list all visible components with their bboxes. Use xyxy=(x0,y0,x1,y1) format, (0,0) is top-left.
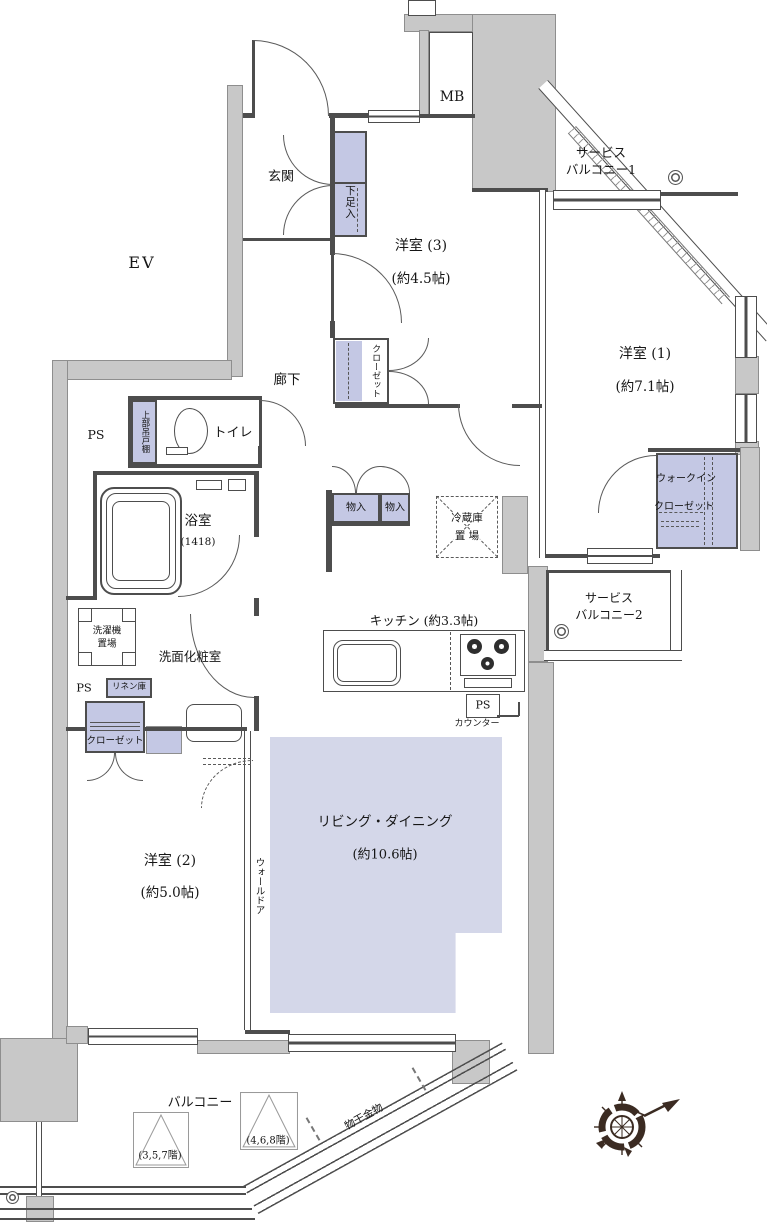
wall-sb2-left xyxy=(546,570,549,652)
wall-ev-right xyxy=(227,85,243,377)
wall-wic-top xyxy=(648,448,740,452)
storage-door-3 xyxy=(380,466,410,493)
storage1-label: 物入 xyxy=(346,502,366,514)
ps-upper-label: PS xyxy=(88,428,105,442)
counter-pointer-v xyxy=(518,702,520,716)
bath-counter xyxy=(196,480,222,490)
roof-protrusion xyxy=(408,0,436,16)
wall-b2-top-right xyxy=(143,727,247,731)
drain-icon-balcony1 xyxy=(668,170,683,185)
bedroom2-door-swing-dashed xyxy=(201,760,253,808)
wic-dash-h3 xyxy=(661,526,699,527)
wall-bath-left xyxy=(93,471,97,600)
wic-label-2: クローゼット xyxy=(654,501,714,513)
wall-entry-right xyxy=(329,113,371,118)
sink-icon xyxy=(333,640,401,686)
wall-sb2-bottom xyxy=(544,650,682,661)
shoe-door-swing-2 xyxy=(283,185,333,235)
wall-bottom-mid xyxy=(197,1040,290,1054)
hallway-label: 廊下 xyxy=(274,373,301,389)
shoe-cabinet-label: 下足入 xyxy=(344,185,356,220)
bedroom1-door-swing xyxy=(598,455,656,513)
bedroom2-closet-dash xyxy=(90,722,140,731)
kitchen-divider-dash xyxy=(450,632,452,690)
storage-door-2 xyxy=(356,466,380,493)
bath-size: (1418) xyxy=(181,536,216,548)
wall-bottom-left-edge xyxy=(66,1026,88,1044)
ev-label: EV xyxy=(128,254,155,272)
wall-window-sill-1 xyxy=(735,356,759,394)
drain-icon-balcony2 xyxy=(554,624,569,639)
entry-window xyxy=(368,110,420,123)
bath-control xyxy=(228,479,246,491)
powder-room-label: 洗面化粧室 xyxy=(159,650,222,664)
wall-b3-bottom xyxy=(335,404,460,408)
shoe-cabinet-divider xyxy=(334,182,366,184)
ps-mid-label: PS xyxy=(76,681,92,694)
fridge-label-2: 置 場 xyxy=(454,530,480,542)
wall-sb2-top xyxy=(546,570,676,573)
front-door-swing xyxy=(253,40,329,116)
stove-burner-icon xyxy=(467,639,482,654)
wall-toilet-right-b xyxy=(258,446,262,468)
wall-powder-right-lower xyxy=(254,696,259,731)
wall-ev-bottom xyxy=(52,360,232,380)
bedroom2-size: (約5.0帖) xyxy=(140,886,199,902)
wall-powder-right-upper xyxy=(254,598,259,614)
toilet-label: トイレ xyxy=(213,427,252,442)
wall-b1-bottom-1 xyxy=(545,554,591,558)
wall-kitchen-sb2 xyxy=(528,566,548,662)
wall-b3-b1 xyxy=(539,190,546,558)
bedroom3-door-swing xyxy=(332,253,402,323)
genkan-step xyxy=(243,238,335,241)
fridge-label-1: 冷蔵庫 xyxy=(450,512,484,524)
bedroom2-name: 洋室 (2) xyxy=(144,853,196,869)
bedroom3-closet-label: クローゼット xyxy=(370,344,380,398)
mb-label: MB xyxy=(440,89,465,105)
wall-bath-top xyxy=(93,471,258,475)
wall-ld-bottom-left xyxy=(245,1030,290,1034)
washer-label-1: 洗濯機 xyxy=(93,627,122,638)
washer-label-2: 置場 xyxy=(97,640,116,651)
service-balcony2-label-1: サービス xyxy=(585,592,633,606)
floor-plan: MB 玄関 下足入 サービス バルコニー1 洋室 (3) (約4.5帖) クロー… xyxy=(0,0,767,1224)
living-name: リビング・ダイニング xyxy=(318,815,453,831)
bedroom1-sb2-window xyxy=(587,548,653,564)
bedroom3-name: 洋室 (3) xyxy=(395,238,447,254)
vanity-icon xyxy=(186,704,242,742)
counter-pointer-h xyxy=(497,715,519,717)
service-balcony1-label-1: サービス xyxy=(576,146,626,160)
wic-dash-h2 xyxy=(661,521,699,522)
stove-burner-icon xyxy=(481,657,494,670)
bedroom2-closet-door-1 xyxy=(87,753,115,781)
stove-icon xyxy=(460,634,516,676)
stove-grill xyxy=(464,678,512,688)
bedroom3-size: (約4.5帖) xyxy=(391,272,450,288)
bathtub-icon xyxy=(100,487,182,595)
shoe-cabinet-dash xyxy=(357,188,359,232)
wall-top-right xyxy=(472,14,556,192)
living-bottom-window xyxy=(288,1034,456,1052)
bedroom3-door-leaf xyxy=(331,253,334,323)
wall-ld-right xyxy=(528,662,554,1054)
balcony-label: バルコニー xyxy=(168,1097,233,1112)
storage-door-1 xyxy=(332,466,356,493)
bedroom1-right-window-2 xyxy=(735,394,757,443)
living-dining-floor xyxy=(270,737,502,1013)
balcony-divider-line xyxy=(36,1122,42,1196)
bedroom1-right-window-1 xyxy=(735,296,757,358)
toilet-door-swing xyxy=(260,400,306,446)
hatch-468-label: (4,6,8階) xyxy=(246,1135,289,1147)
bedroom1-size: (約7.1帖) xyxy=(615,380,674,396)
wall-b1-top xyxy=(660,192,738,196)
wall-mb-bottom xyxy=(420,114,475,118)
toilet-tank xyxy=(166,447,188,455)
hatch-357-label: (3,5,7階) xyxy=(138,1150,181,1162)
wall-sb2-right xyxy=(670,570,682,654)
wall-bottom-left-block xyxy=(0,1038,78,1122)
wall-powder-bottom-left xyxy=(66,596,96,600)
balcony-rail-h3 xyxy=(0,1208,252,1210)
storage2-label: 物入 xyxy=(385,502,405,514)
bedroom3-closet-door-2 xyxy=(389,371,429,404)
wall-toilet-bottom xyxy=(128,464,262,468)
living-size: (約10.6帖) xyxy=(352,849,417,864)
wall-b3-left-upper xyxy=(330,118,335,255)
bedroom2-bottom-window xyxy=(88,1028,198,1045)
drain-icon-balcony xyxy=(6,1191,19,1204)
bedroom2-closet-door-2 xyxy=(115,753,143,781)
bedroom1-top-window xyxy=(553,190,661,210)
wall-b2-top-left xyxy=(66,727,85,731)
linen-label: リネン庫 xyxy=(112,683,146,693)
wall-fridge-right xyxy=(502,496,528,574)
service-balcony1-label-2: バルコニー1 xyxy=(566,163,636,177)
drying-fixture-tick-1 xyxy=(306,1117,321,1141)
compass-icon xyxy=(588,1085,698,1160)
bedroom1-name: 洋室 (1) xyxy=(619,346,671,362)
wall-mb-left xyxy=(419,30,429,116)
wall-door-label: ウォールドア xyxy=(253,858,264,915)
service-balcony2-label-2: バルコニー2 xyxy=(575,609,642,623)
wall-wic-right xyxy=(740,447,760,551)
bedroom2-door-track-1 xyxy=(203,758,251,759)
wall-bath-right-upper xyxy=(254,471,259,537)
genkan-label: 玄関 xyxy=(268,171,294,186)
wic-label-1: ウォークイン xyxy=(656,473,716,485)
bedroom3-closet-door-1 xyxy=(389,338,429,371)
kitchen-label: キッチン (約3.3帖) xyxy=(370,614,479,628)
wall-left-outer xyxy=(52,360,68,1076)
bedroom3-closet-dash xyxy=(348,343,350,399)
stove-burner-icon xyxy=(494,639,509,654)
ps-kitchen-label: PS xyxy=(476,700,491,713)
wall-b3-topright xyxy=(472,188,548,192)
bedroom2-closet-label: クローゼット xyxy=(86,737,143,748)
balcony-rail-h4 xyxy=(0,1218,255,1220)
wall-b3-left-lower xyxy=(330,321,335,338)
hall-door-swing xyxy=(458,404,520,466)
bath-name: 浴室 xyxy=(185,514,212,530)
upper-cabinet-label: 上部吊戸棚 xyxy=(139,411,149,454)
counter-label: カウンター xyxy=(454,719,499,729)
